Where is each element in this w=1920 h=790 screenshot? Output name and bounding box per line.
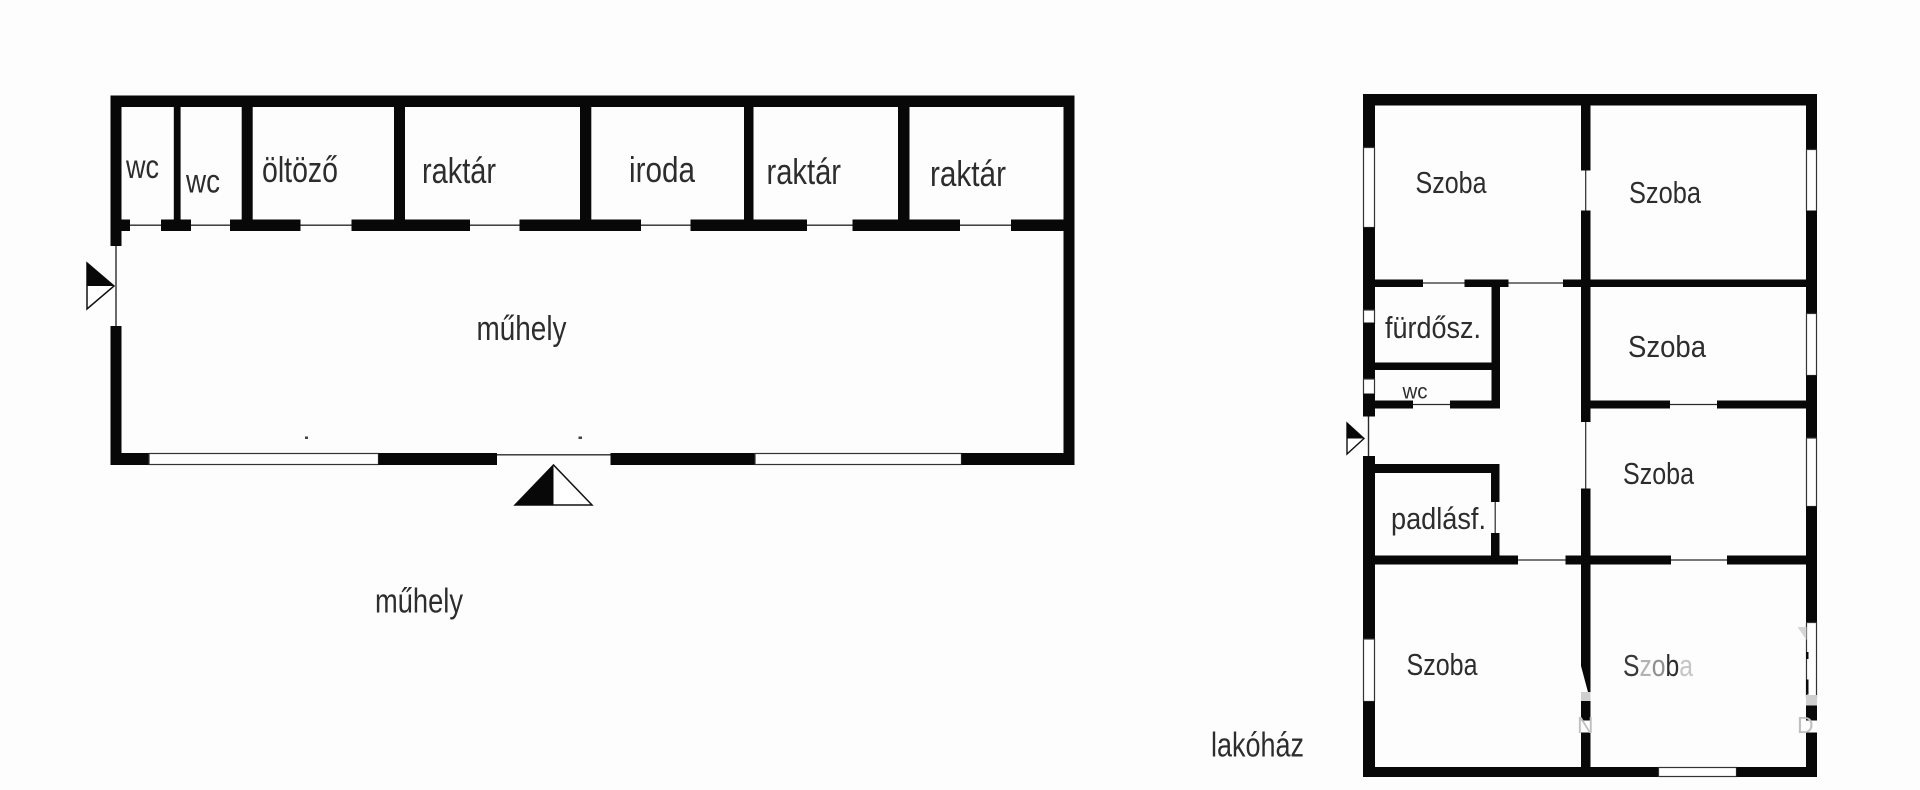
svg-text:öltöző: öltöző bbox=[262, 149, 338, 190]
svg-text:műhely: műhely bbox=[477, 310, 567, 348]
svg-text:wc: wc bbox=[125, 148, 159, 185]
svg-text:Szoba: Szoba bbox=[1623, 456, 1695, 491]
svg-text:Szoba: Szoba bbox=[1629, 175, 1702, 210]
svg-text:wc: wc bbox=[185, 163, 220, 200]
svg-text:fürdősz.: fürdősz. bbox=[1385, 310, 1481, 345]
svg-text:műhely: műhely bbox=[375, 583, 463, 621]
svg-text:raktár: raktár bbox=[767, 151, 842, 192]
svg-text:Szoba: Szoba bbox=[1628, 329, 1707, 364]
svg-text:Szoba: Szoba bbox=[1407, 647, 1479, 682]
svg-text:padlásf.: padlásf. bbox=[1391, 501, 1486, 536]
svg-text:Szoba: Szoba bbox=[1623, 648, 1694, 683]
svg-text:iroda: iroda bbox=[629, 149, 696, 190]
svg-text:raktár: raktár bbox=[930, 153, 1006, 194]
svg-text:raktár: raktár bbox=[422, 150, 496, 191]
svg-text:N: N bbox=[1577, 712, 1594, 738]
svg-text:Szoba: Szoba bbox=[1416, 165, 1488, 200]
svg-text:lakóház: lakóház bbox=[1211, 727, 1304, 765]
svg-text:wc: wc bbox=[1402, 381, 1428, 404]
svg-text:D: D bbox=[1797, 712, 1814, 738]
